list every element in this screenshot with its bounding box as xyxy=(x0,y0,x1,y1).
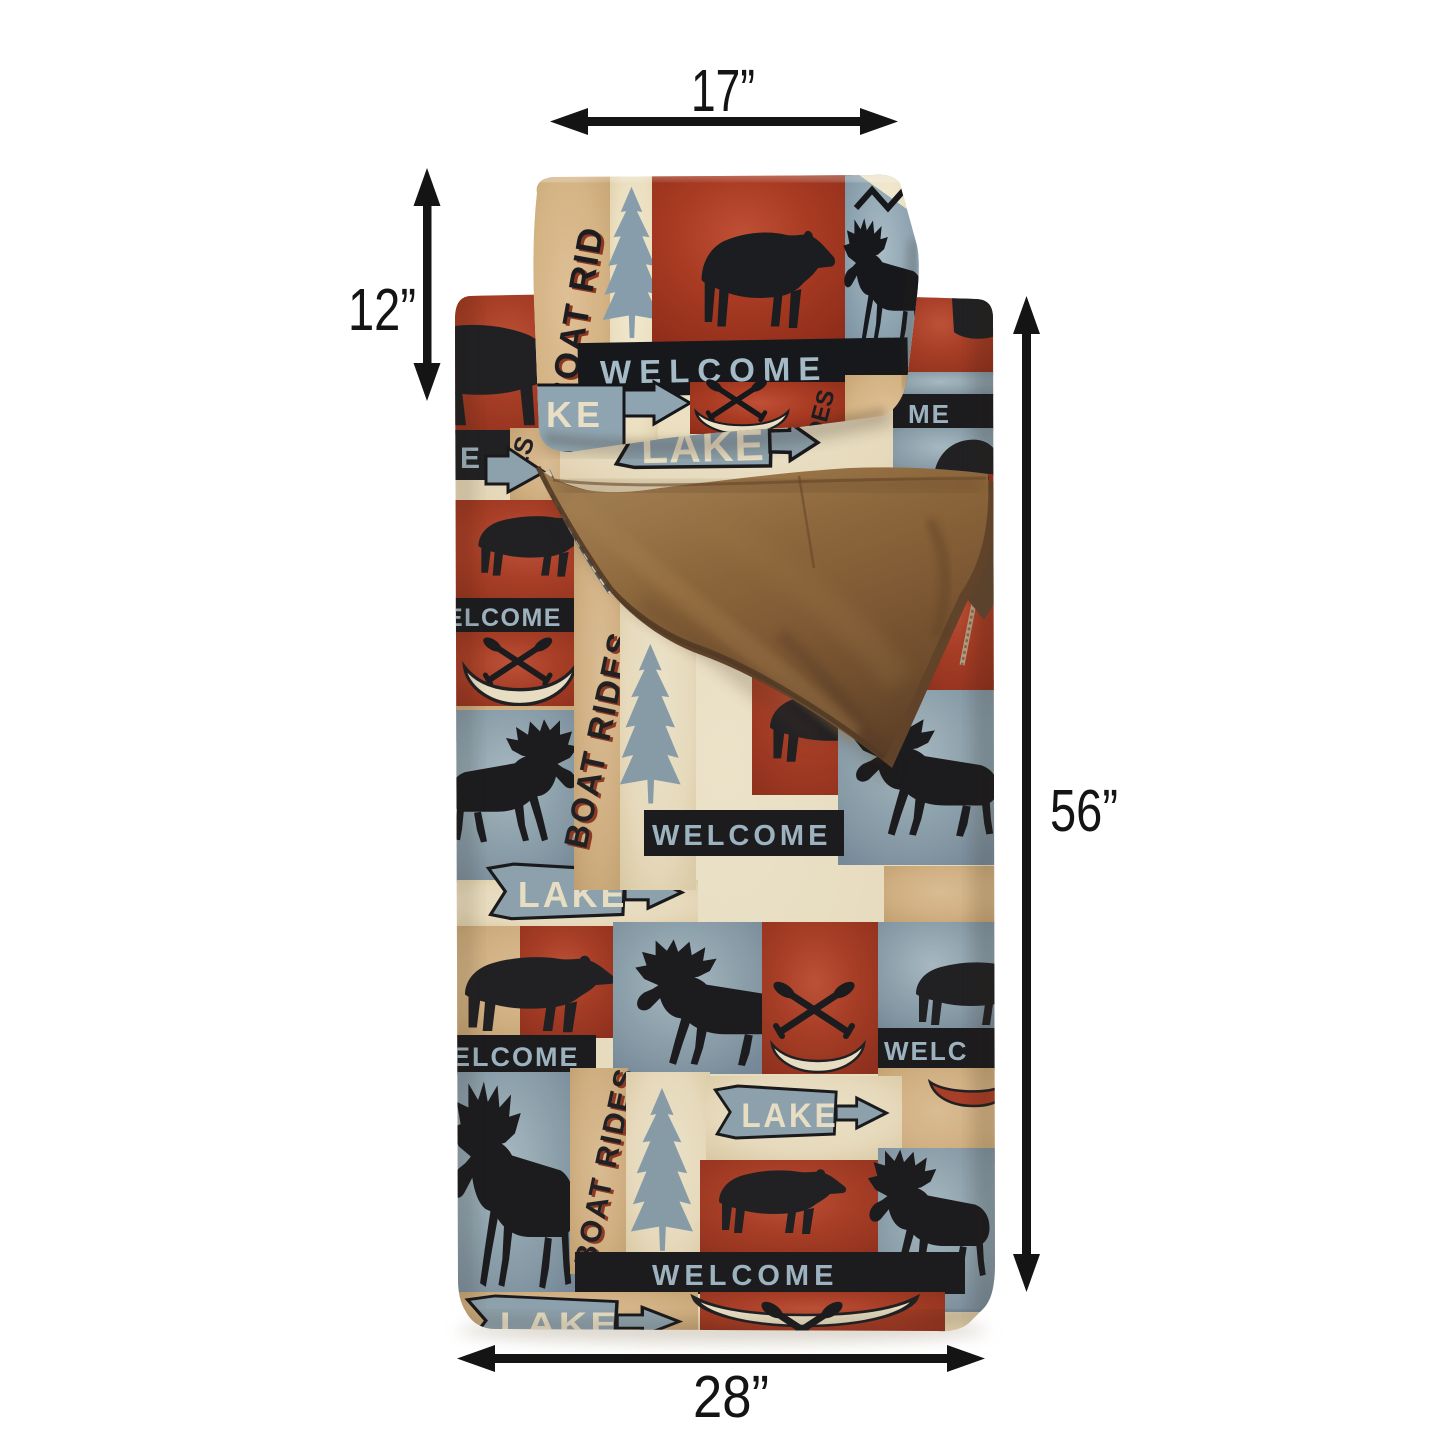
svg-text:17”: 17” xyxy=(691,58,755,124)
svg-text:12”: 12” xyxy=(348,277,416,343)
svg-text:KE: KE xyxy=(546,394,604,435)
svg-text:56”: 56” xyxy=(1050,778,1118,844)
svg-text:28”: 28” xyxy=(693,1364,769,1430)
